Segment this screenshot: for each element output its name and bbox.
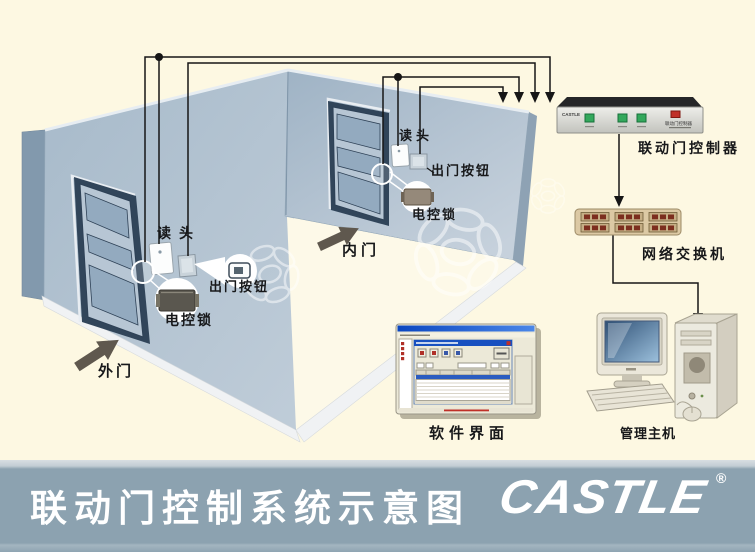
inner-exit-button-face [413,157,424,166]
controller-brand-text: CASTLE [562,112,580,117]
list-selected-row [416,375,510,380]
software-ui-label: 软件界面 [429,426,509,443]
controller-front-panel [557,107,703,133]
inner-door [328,99,390,226]
left-wall-edge-face [22,130,45,300]
exit-button-icon-pad [234,267,243,274]
inner-electric-lock [404,189,431,205]
inner-door-label: 内门 [342,243,380,260]
tower-side [717,314,737,418]
software-outer-titlebar [398,326,535,332]
dialog-close-button [507,341,511,345]
software-side-panel [515,356,532,404]
outer-door-lock-label: 电控锁 [165,313,213,328]
wire-arrowhead [614,196,624,207]
dialog-title-text [416,342,458,344]
page-title: 联动门控制系统示意图 [30,478,470,532]
controller-button-caption [637,126,646,127]
controller-faceplate-subtext [669,127,691,128]
controller-faceplate-text: 联动门控制器 [665,120,692,127]
brand-logo-wordmark: CASTLE [495,469,711,524]
controller-button-caption [618,126,627,127]
management-computer [587,313,737,421]
inner-door-reader-label: 读头 [399,129,433,143]
inner-lock-tab [431,192,435,202]
wire-arrowhead [514,92,524,103]
management-host-label: 管理主机 [620,427,676,441]
outer-card-reader-led [158,250,161,253]
controller-top [557,97,702,107]
software-inner-dialog [414,340,512,404]
banner: 联动门控制系统示意图 CASTLE ® [0,460,755,552]
tower-power-button [689,393,695,399]
wire-junction-dot [155,53,163,61]
outer-lock-tab [195,294,199,307]
network-switch-device [575,209,681,235]
controller-green-button [585,114,594,122]
outer-door-reader-label: 读头 [157,226,201,241]
controller-green-button [637,114,646,122]
network-switch-label: 网络交换机 [642,247,727,262]
outer-exit-button-face [181,258,193,273]
wire-arrowhead [498,92,508,103]
inner-door-lock-label: 电控锁 [412,208,457,222]
wire-arrowhead [530,92,540,103]
software-menu-text [400,335,430,337]
registered-trademark-icon: ® [716,470,726,486]
controller-button-caption [585,126,594,127]
dialog-filter-row [417,363,509,368]
outer-door-label: 外门 [98,364,134,381]
wire-junction-dot [394,73,402,81]
outer-door-exit-button-label: 出门按钮 [209,280,269,294]
inner-card-reader [391,144,409,167]
monitor-logo [626,368,636,371]
software-status-text [444,410,489,412]
inner-card-reader-led [398,150,401,153]
controller-device: CASTLE 联动门控制器 [557,97,703,133]
tower-drive-bay [681,340,711,345]
outer-lock-tab [156,294,160,307]
dialog-statusbar [415,401,511,404]
brand-logo: CASTLE ® [500,468,706,526]
software-tree-panel [399,339,412,409]
controller-label: 联动门控制器 [638,141,740,156]
software-window [396,324,541,419]
tower-led [701,395,704,398]
tower-vent-circle [689,357,705,373]
controller-green-button [618,114,627,122]
tower-drive-bay [681,331,711,336]
outer-electric-lock [159,290,195,311]
inner-door-exit-button-label: 出门按钮 [431,164,491,178]
dialog-action-button-text [497,353,507,355]
controller-power-indicator [671,111,680,118]
inner-lock-tab [401,192,405,202]
wire-arrowhead [545,92,555,103]
diagram-canvas: CASTLE 联动门控制器 [0,0,755,552]
list-header [416,370,510,375]
